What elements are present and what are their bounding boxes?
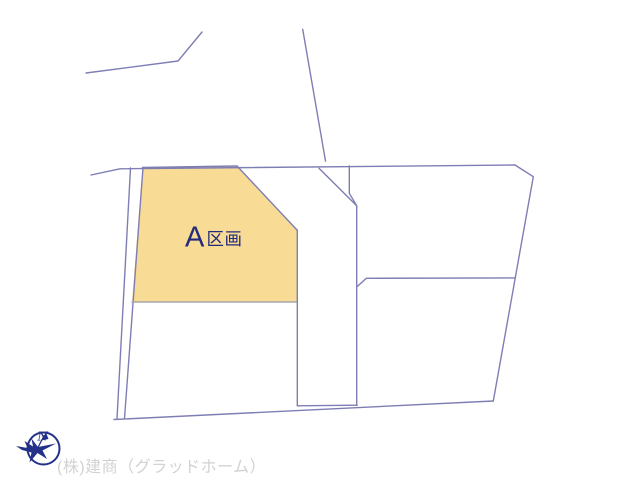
parcel-a-label-suffix: 区画 [207, 229, 243, 249]
parcel-map: A 区画 N [0, 0, 640, 480]
sliver-left-outer [117, 168, 131, 419]
mid-strip-bottom [297, 405, 357, 406]
road-line-upper-right [303, 29, 326, 161]
compass-north-icon: N [16, 430, 60, 465]
parcel-a-label-letter: A [185, 222, 205, 254]
compass-north-label: N [37, 430, 49, 444]
compass-bird [16, 439, 56, 463]
road-line-upper-left [86, 32, 202, 73]
boundary-right [493, 165, 533, 401]
company-watermark: (株)建商（グラッドホーム） [57, 453, 266, 477]
boundary-bottom [114, 401, 493, 420]
road-wedge-diagonal [319, 168, 357, 205]
right-parcel-divider [357, 278, 515, 287]
